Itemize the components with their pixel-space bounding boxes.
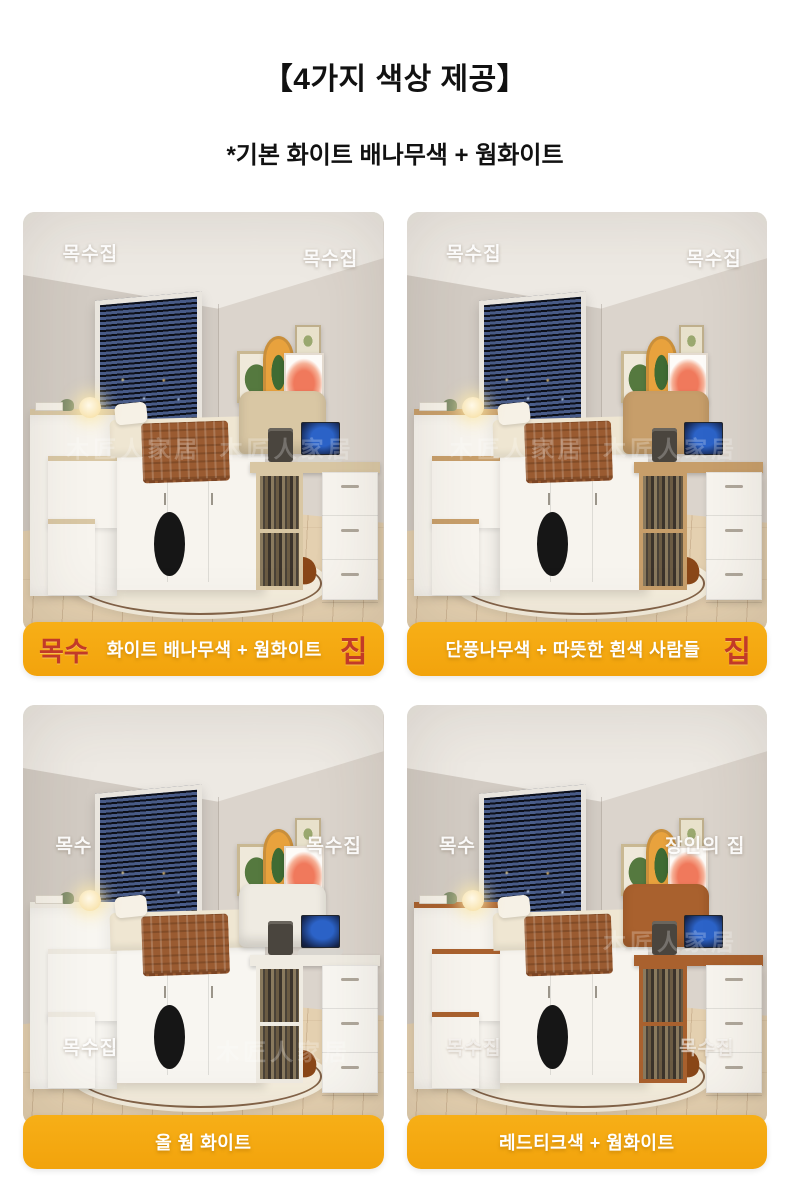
drawer: [322, 472, 378, 516]
drawer: [706, 965, 762, 1009]
watermark: 목수집: [686, 244, 741, 271]
drawer: [322, 560, 378, 604]
color-option-caption: 레드티크색 + 웜화이트: [407, 1115, 768, 1169]
cabinet-handle: [211, 493, 213, 505]
pillow: [114, 401, 148, 425]
cabinet-handle: [548, 493, 550, 505]
watermark: 목수: [439, 831, 476, 858]
storage-stair-upper: [48, 456, 116, 528]
caption-text: 레드티크색 + 웜화이트: [431, 1129, 744, 1155]
drawer: [706, 560, 762, 604]
cabinet-handle: [164, 986, 166, 998]
cabinet-handle: [595, 986, 597, 998]
drawer: [322, 516, 378, 560]
caption-accent-suffix: 집: [340, 627, 368, 671]
page-subtitle: *기본 화이트 배나무색 + 웜화이트: [0, 135, 790, 170]
colorway-card-maple-warm-white: 목수집목수집木匠人家居木匠人家居 단풍나무색 + 따뜻한 흰색 사람들 집: [407, 212, 768, 676]
watermark: 木匠人家居: [216, 1033, 351, 1067]
watermark: 木匠人家居: [603, 923, 738, 957]
books-decor: [35, 895, 63, 904]
caption-text: 단풍나무색 + 따뜻한 흰색 사람들: [431, 636, 716, 662]
storage-stair-lower: [432, 519, 479, 595]
cabinet-handle: [548, 986, 550, 998]
cabinet-handle: [595, 493, 597, 505]
color-option-caption: 단풍나무색 + 따뜻한 흰색 사람들 집: [407, 622, 768, 676]
blanket: [141, 914, 230, 977]
watermark: 목수집: [306, 831, 361, 858]
watermark: 목수집: [446, 1033, 501, 1060]
cat-hole: [154, 512, 185, 576]
cat-hole: [537, 512, 568, 576]
blanket: [524, 914, 613, 977]
color-option-caption: 목수 화이트 배나무색 + 웜화이트 집: [23, 622, 384, 676]
caption-text: 화이트 배나무색 + 웜화이트: [97, 636, 332, 662]
desk-top: [250, 955, 380, 966]
pillow: [114, 894, 148, 918]
drawer-unit: [322, 965, 378, 1093]
coffee-maker: [268, 921, 293, 955]
bedside-lamp: [79, 890, 101, 911]
product-photo: 목수집목수집木匠人家居木匠人家居: [407, 212, 768, 632]
watermark: 장인의 집: [665, 831, 745, 858]
color-grid: 목수집목수집木匠人家居木匠人家居 목수 화이트 배나무색 + 웜화이트 집: [23, 212, 767, 1169]
books-decor: [35, 402, 63, 411]
color-option-caption: 올 웜 화이트: [23, 1115, 384, 1169]
storage-stair-upper: [432, 456, 500, 528]
drawer: [706, 472, 762, 516]
desk-bookshelf: [256, 472, 304, 589]
books-decor: [419, 895, 447, 904]
drawer-unit: [322, 472, 378, 600]
watermark: 木匠人家居: [66, 430, 201, 464]
watermark: 목수집: [679, 1033, 734, 1060]
caption-accent-prefix: 목수: [39, 630, 89, 669]
product-photo: 목수장인의 집木匠人家居목수집목수집: [407, 705, 768, 1125]
colorway-card-all-warm-white: 목수목수집목수집木匠人家居 올 웜 화이트: [23, 705, 384, 1169]
watermark: 목수집: [63, 239, 118, 266]
drawer-unit: [706, 472, 762, 600]
cat-hole: [154, 1005, 185, 1069]
page-header: 【4가지 색상 제공】 *기본 화이트 배나무색 + 웜화이트: [0, 0, 790, 170]
watermark: 木匠人家居: [603, 430, 738, 464]
pillow: [497, 401, 531, 425]
storage-stair-upper: [432, 949, 500, 1021]
drawer-unit: [706, 965, 762, 1093]
pillow: [497, 894, 531, 918]
product-photo: 목수목수집목수집木匠人家居: [23, 705, 384, 1125]
desk-bookshelf: [639, 472, 687, 589]
cabinet-handle: [164, 493, 166, 505]
cabinet-handle: [211, 986, 213, 998]
desk-bookshelf: [639, 965, 687, 1082]
watermark: 목수집: [303, 244, 358, 271]
drawer: [706, 516, 762, 560]
caption-accent-suffix: 집: [723, 627, 751, 671]
watermark: 목수: [55, 831, 92, 858]
cat-hole: [537, 1005, 568, 1069]
watermark: 木匠人家居: [450, 430, 585, 464]
laptop-screen: [301, 915, 340, 948]
drawer: [322, 965, 378, 1009]
watermark: 목수집: [63, 1033, 118, 1060]
watermark: 木匠人家居: [220, 430, 355, 464]
product-photo: 목수집목수집木匠人家居木匠人家居: [23, 212, 384, 632]
books-decor: [419, 402, 447, 411]
bedside-lamp: [462, 890, 484, 911]
colorway-card-white-pear-warm-white: 목수집목수집木匠人家居木匠人家居 목수 화이트 배나무색 + 웜화이트 집: [23, 212, 384, 676]
watermark: 목수집: [446, 239, 501, 266]
storage-stair-upper: [48, 949, 116, 1021]
colorway-card-red-teak-warm-white: 목수장인의 집木匠人家居목수집목수집 레드티크색 + 웜화이트: [407, 705, 768, 1169]
storage-stair-lower: [48, 519, 95, 595]
bedside-lamp: [79, 397, 101, 418]
bedside-lamp: [462, 397, 484, 418]
laptop: [301, 915, 344, 955]
page-title: 【4가지 색상 제공】: [0, 54, 790, 98]
caption-text: 올 웜 화이트: [47, 1129, 360, 1155]
